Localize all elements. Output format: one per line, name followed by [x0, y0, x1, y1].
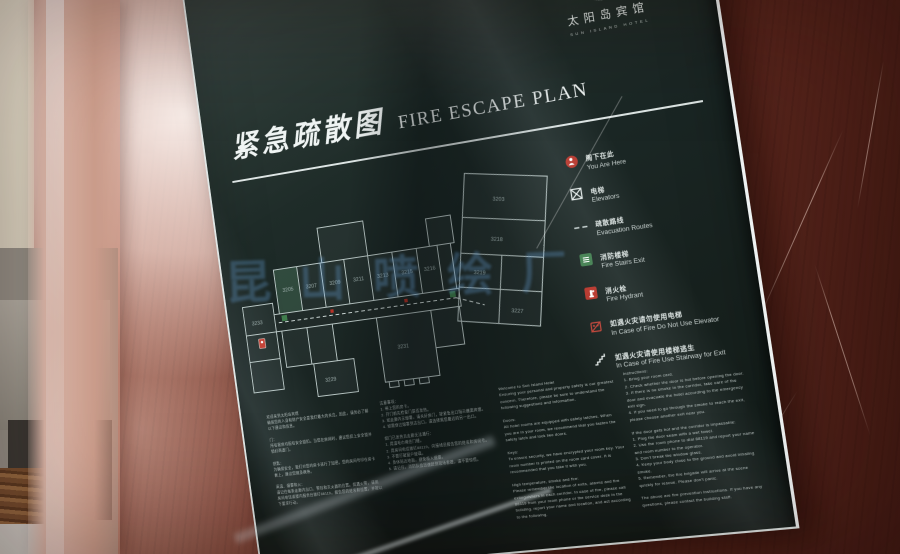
room-number: 3218	[491, 236, 503, 243]
room-number: 3227	[511, 308, 523, 315]
no-elevator-icon	[588, 319, 603, 334]
fire-stairs-icon	[578, 253, 593, 268]
floor-plan-walls	[229, 160, 574, 404]
you-are-here-marker	[258, 338, 265, 348]
floor-plan: 3205 3207 3209 3211 3213 3215 3216 3203 …	[224, 144, 584, 409]
hotel-logo: 太阳岛宾馆 SUN ISLAND HOTEL	[531, 0, 677, 42]
photo-scene: 太阳岛宾馆 SUN ISLAND HOTEL 紧急疏散图 FIRE ESCAPE…	[0, 0, 900, 554]
fire-hydrant-icon	[583, 286, 598, 301]
legend-item-fire-hydrant: 消火栓 Fire Hydrant	[583, 265, 750, 308]
fire-escape-plan-sign: 太阳岛宾馆 SUN ISLAND HOTEL 紧急疏散图 FIRE ESCAPE…	[182, 0, 800, 554]
use-stairway-icon	[593, 352, 608, 367]
info-column-en-instructions: Instructions: 1. Bring your room card. 2…	[622, 356, 765, 509]
title-chinese: 紧急疏散图	[228, 97, 387, 167]
room-number: 3219	[473, 270, 485, 277]
elevator-icon	[568, 187, 583, 202]
route-dash-icon	[573, 220, 588, 235]
wood-panel-edge-highlight	[46, 0, 64, 554]
you-are-here-icon	[564, 154, 579, 169]
room-number: 3203	[492, 196, 504, 203]
legend-item-no-elevator: 如遇火灾请勿使用电梯 In Case of Fire Do Not Use El…	[588, 299, 756, 341]
legend: 阁下在此 You Are Here 电梯 Elevators	[564, 129, 763, 387]
wood-panel-edge	[28, 0, 120, 554]
